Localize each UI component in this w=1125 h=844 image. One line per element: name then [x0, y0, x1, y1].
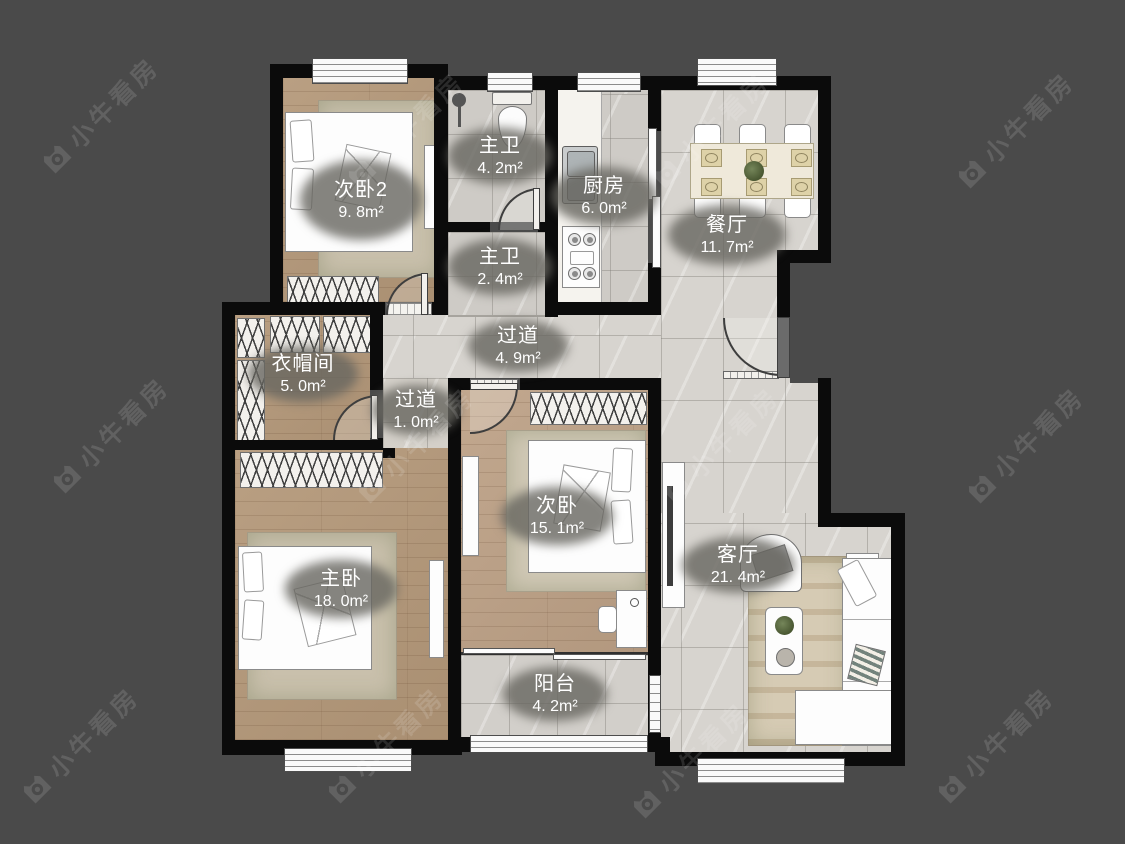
wardrobe [323, 316, 371, 353]
niu-watermark: 小牛看房 [13, 678, 147, 812]
floor-hallway-small [383, 378, 448, 448]
floor-bath-second [448, 232, 545, 317]
wall [818, 513, 905, 527]
wall [520, 378, 648, 390]
pillow [290, 167, 314, 210]
wardrobe [237, 318, 265, 358]
wardrobe [237, 360, 265, 442]
niu-logo-icon [950, 152, 992, 194]
window [470, 735, 648, 753]
pillow [611, 448, 633, 493]
pillow [290, 119, 315, 162]
niu-logo-icon [930, 767, 972, 809]
kitchen-sink [562, 146, 598, 204]
wall [891, 513, 905, 766]
toilet [492, 92, 532, 105]
door-leaf [421, 273, 428, 315]
niu-logo-icon [625, 782, 667, 824]
window [649, 675, 661, 733]
wardrobe [240, 452, 383, 488]
tv [667, 486, 673, 586]
niu-logo-icon [960, 467, 1002, 509]
sliding-door-panel [553, 654, 646, 660]
wall [432, 302, 448, 315]
sofa-chaise [795, 690, 892, 745]
floorplan-canvas: ❋ [0, 0, 1125, 844]
watermark-text: 小牛看房 [39, 678, 146, 785]
door-leaf [371, 395, 378, 440]
window [284, 748, 412, 772]
mirror-panel [462, 456, 479, 556]
niu-logo-icon [45, 457, 87, 499]
entry-door-leaf [777, 317, 790, 378]
threshold-line [448, 315, 545, 317]
wall [434, 64, 448, 315]
floor-balcony [461, 655, 648, 737]
window [577, 72, 641, 92]
niu-logo-icon [35, 137, 77, 179]
wall [448, 378, 470, 390]
watermark-text: 小牛看房 [954, 678, 1061, 785]
wall [818, 378, 831, 527]
wall [235, 440, 370, 450]
wall [777, 263, 790, 317]
watermark-text: 小牛看房 [974, 63, 1081, 170]
window [312, 58, 408, 84]
background-mask [790, 263, 831, 383]
wall [270, 302, 385, 315]
desk-lamp [630, 598, 639, 607]
door-leaf [533, 188, 540, 230]
dining-table [690, 143, 814, 199]
wall [222, 302, 235, 755]
armchair [740, 534, 802, 592]
niu-logo-icon [320, 767, 362, 809]
window [487, 72, 533, 92]
coffee-table [765, 607, 803, 675]
watermark-text: 小牛看房 [984, 378, 1091, 485]
wall [383, 448, 395, 458]
window [697, 58, 777, 86]
tv-cabinet [662, 462, 685, 608]
wall [818, 76, 831, 263]
wall [545, 76, 558, 317]
shower-hose [458, 105, 461, 127]
niu-watermark: 小牛看房 [33, 48, 167, 182]
pillow [242, 552, 264, 593]
wall [370, 315, 383, 390]
watermark-text: 小牛看房 [59, 48, 166, 155]
floor-hallway [383, 315, 661, 378]
niu-watermark: 小牛看房 [43, 368, 177, 502]
mirror-panel [429, 560, 444, 658]
wall [270, 64, 283, 315]
door-leaf [470, 383, 518, 390]
niu-watermark: 小牛看房 [958, 378, 1092, 512]
blanket [553, 464, 611, 531]
wardrobe [530, 392, 647, 425]
pillow [610, 499, 633, 544]
wall [434, 222, 490, 232]
watermark-text: 小牛看房 [69, 368, 176, 475]
niu-watermark: 小牛看房 [928, 678, 1062, 812]
stove [562, 226, 600, 288]
wall [448, 378, 461, 752]
wardrobe [270, 316, 320, 353]
pillow [242, 599, 265, 640]
sliding-door-panel [648, 128, 657, 200]
window [697, 758, 845, 784]
niu-watermark: 小牛看房 [948, 63, 1082, 197]
wall [558, 302, 661, 315]
wall [648, 76, 661, 131]
niu-logo-icon [15, 767, 57, 809]
sliding-door-panel [463, 648, 555, 654]
sliding-door-panel [652, 196, 661, 268]
desk-chair [598, 606, 617, 633]
